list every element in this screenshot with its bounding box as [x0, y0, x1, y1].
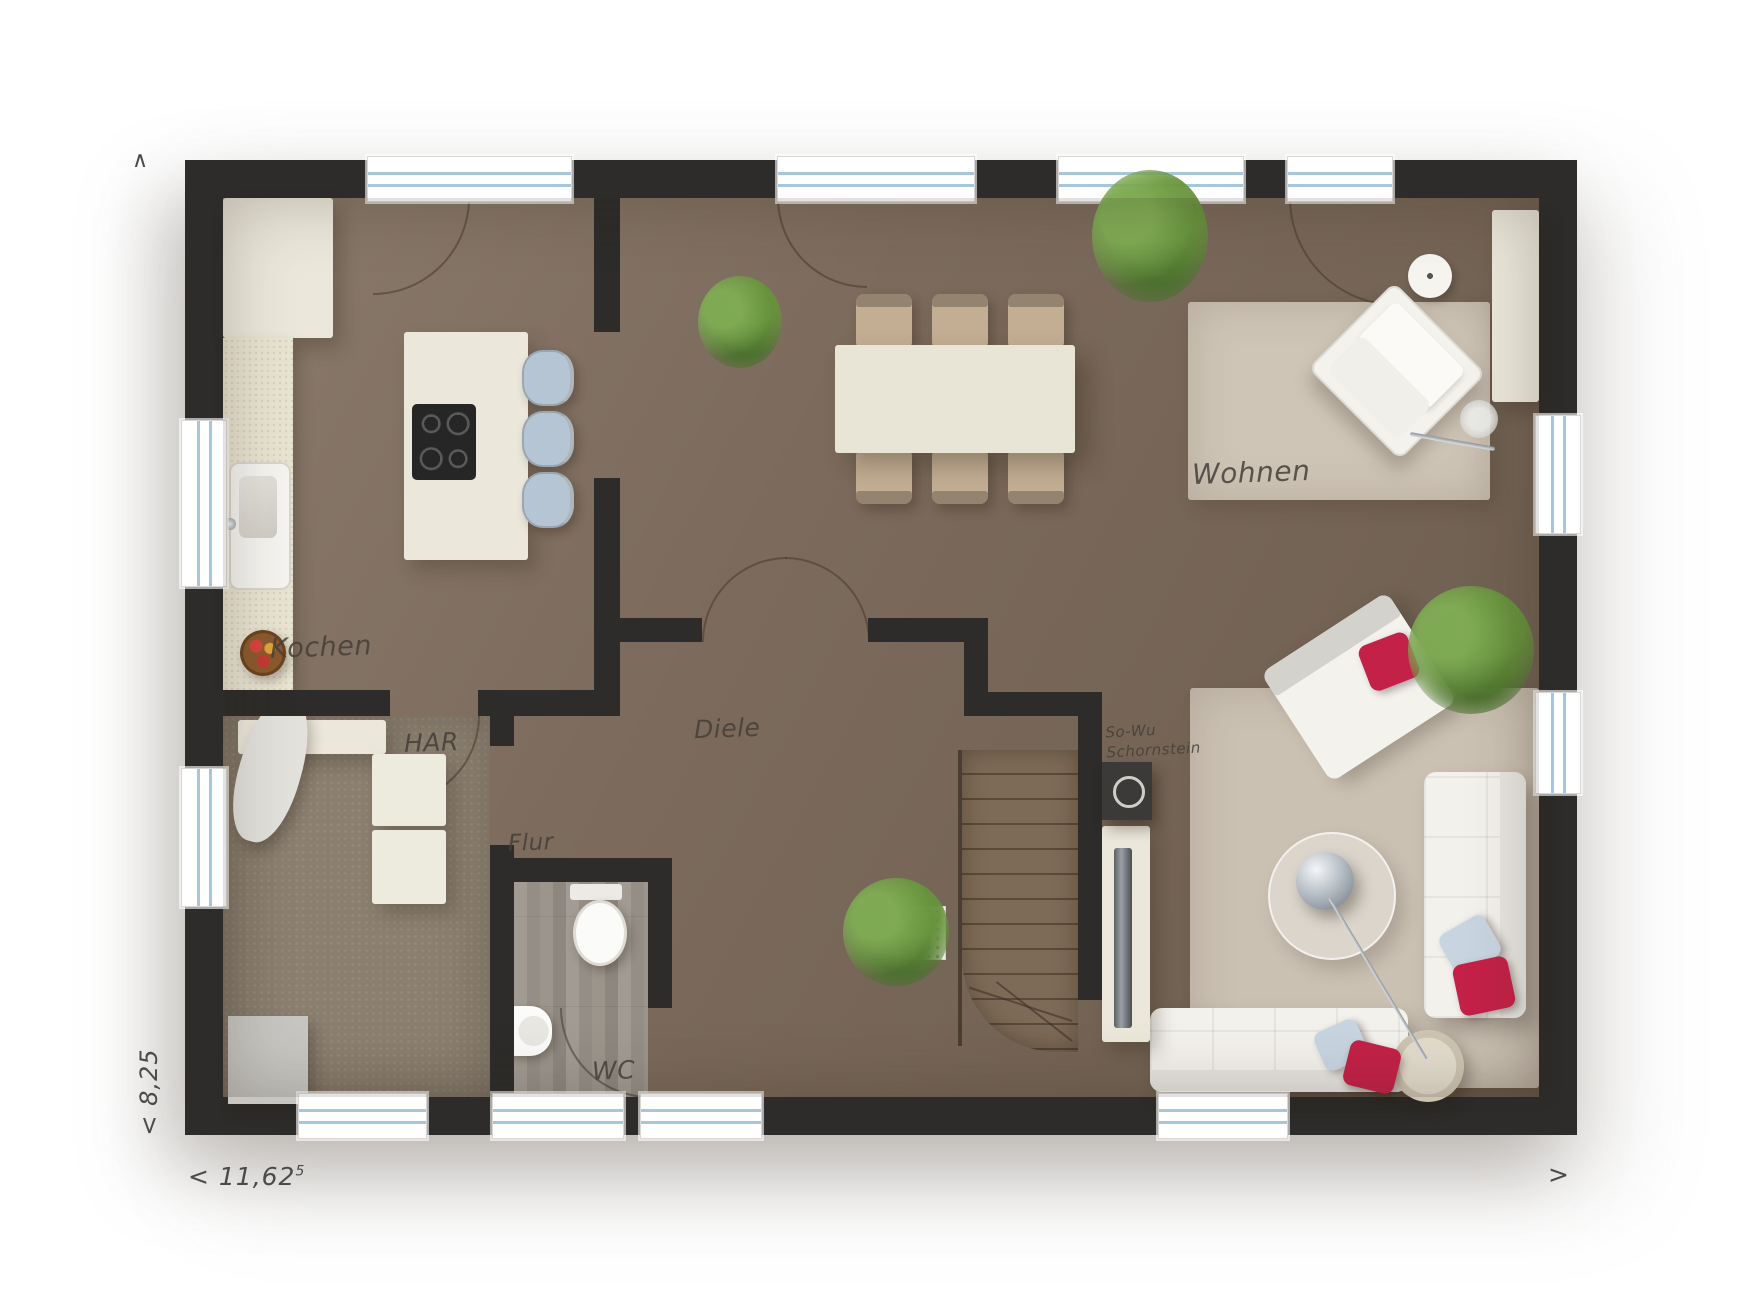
- window: [1535, 415, 1581, 534]
- bar-stool: [522, 350, 574, 406]
- storage-box: [228, 1016, 308, 1104]
- dimension-width-value: < 11,62: [188, 1162, 295, 1191]
- har-cabinet: [372, 754, 446, 826]
- window: [640, 1093, 762, 1139]
- bar-stool: [522, 472, 574, 528]
- window: [1535, 692, 1581, 794]
- exterior-wall-right: [1539, 160, 1577, 1135]
- chair-back: [856, 294, 912, 307]
- chimney-label: So-Wu Schornstein: [1105, 718, 1201, 763]
- sideboard: [1492, 210, 1539, 402]
- interior-wall: [988, 692, 1102, 716]
- room-label-wohnen: Wohnen: [1191, 454, 1310, 491]
- dimension-arrow-top: ∧: [132, 148, 149, 173]
- room-label-kochen: Kochen: [269, 630, 372, 665]
- dining-chair: [1008, 448, 1064, 504]
- dimension-depth: < 8,25: [135, 1027, 163, 1157]
- chair-back: [932, 491, 988, 504]
- tv-screen: [1114, 848, 1132, 1028]
- window: [181, 420, 227, 587]
- chair-back: [1008, 491, 1064, 504]
- interior-wall: [490, 716, 514, 746]
- interior-wall: [478, 690, 594, 716]
- interior-wall: [594, 478, 620, 716]
- room-label-flur: Flur: [508, 829, 555, 857]
- bar-stool: [522, 411, 574, 467]
- har-cabinet: [372, 830, 446, 904]
- terrace-door-window: [1287, 156, 1393, 202]
- interior-wall: [964, 642, 988, 716]
- dining-chair: [932, 294, 988, 350]
- dining-chair: [932, 448, 988, 504]
- window: [181, 768, 227, 907]
- potted-plant: [1092, 170, 1208, 302]
- arc-lamp-shade: [1296, 852, 1354, 910]
- interior-wall: [490, 845, 514, 1097]
- dining-chair: [856, 448, 912, 504]
- room-label-har: HAR: [404, 727, 460, 758]
- side-table: [1392, 1030, 1464, 1102]
- dining-chair: [856, 294, 912, 350]
- toilet: [573, 900, 627, 966]
- interior-wall: [648, 858, 672, 1008]
- potted-plant: [698, 276, 782, 368]
- window: [1158, 1093, 1288, 1139]
- room-label-diele: Diele: [694, 713, 761, 744]
- toilet-tank: [570, 884, 622, 900]
- winder-step-line: [969, 987, 1072, 1022]
- dimension-arrow-right: >: [1548, 1160, 1570, 1189]
- stair-stringer: [958, 750, 962, 1046]
- sink-basin: [239, 476, 277, 538]
- potted-plant: [1408, 586, 1534, 714]
- window: [367, 156, 572, 202]
- dining-chair: [1008, 294, 1064, 350]
- staircase: [962, 750, 1078, 1052]
- dimension-width: < 11,625: [188, 1162, 305, 1191]
- interior-wall: [868, 618, 988, 642]
- exterior-wall-left: [185, 160, 223, 1135]
- wall-clock-icon: [1408, 254, 1452, 298]
- window: [298, 1093, 427, 1139]
- cooktop: [412, 404, 476, 480]
- potted-plant: [843, 878, 949, 986]
- interior-wall: [1078, 716, 1102, 1000]
- interior-wall: [185, 690, 390, 716]
- kitchen-tall-cabinet: [223, 198, 333, 338]
- floor-lamp-base: [1460, 400, 1498, 438]
- room-label-wc: WC: [592, 1055, 636, 1085]
- chimney-ring-icon: [1113, 776, 1145, 808]
- winder-step-line: [996, 981, 1073, 1042]
- dimension-width-superscript: 5: [295, 1164, 305, 1180]
- chair-back: [856, 491, 912, 504]
- interior-wall: [594, 198, 620, 332]
- chair-back: [932, 294, 988, 307]
- dining-table: [835, 345, 1075, 453]
- window: [492, 1093, 624, 1139]
- interior-wall: [594, 618, 702, 642]
- floor-plan: ∧ < 8,25 < 11,625 >: [0, 0, 1754, 1314]
- chair-back: [1008, 294, 1064, 307]
- entrance-door-window: [777, 156, 975, 202]
